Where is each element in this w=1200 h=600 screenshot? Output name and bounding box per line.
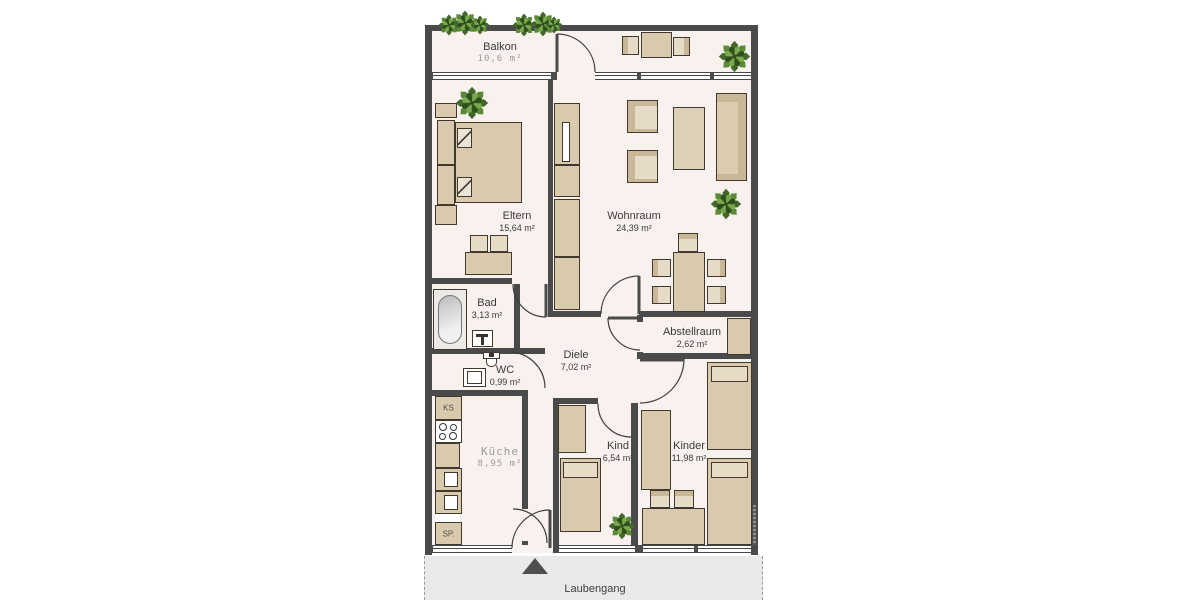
- wardrobe-icon: [554, 165, 580, 197]
- desk-chair-icon: [674, 490, 694, 508]
- plant-icon: [718, 40, 751, 73]
- dining-chair-icon: [652, 259, 671, 277]
- sofa-icon: [716, 93, 747, 181]
- room-area: 3,13 m²: [472, 310, 503, 320]
- pillow-icon: [457, 128, 472, 148]
- wardrobe-icon: [558, 405, 586, 453]
- room-label-eltern: Eltern 15,64 m²: [499, 210, 535, 233]
- room-area: 6,54 m²: [603, 453, 634, 463]
- room-area: 0,99 m²: [490, 377, 521, 387]
- room-label-wc: WC 0,99 m²: [490, 364, 521, 387]
- floor-plan: KS SP.: [0, 0, 1200, 600]
- stool-icon: [470, 235, 488, 252]
- room-label-kueche: Küche 8,95 m²: [478, 446, 523, 469]
- pillow-icon: [711, 462, 748, 478]
- dining-chair-icon: [707, 259, 726, 277]
- wardrobe-icon: [554, 257, 580, 310]
- burner-icon: [450, 424, 457, 431]
- room-name: Kinder: [672, 440, 707, 453]
- pillow-icon: [711, 366, 748, 382]
- room-area: 10,6 m²: [478, 54, 523, 64]
- desk-chair-icon: [650, 490, 670, 508]
- entrance-arrow-icon: [522, 558, 548, 574]
- room-label-kind: Kind 6,54 m²: [603, 440, 634, 463]
- cabinet-icon: [435, 103, 457, 118]
- dishwasher-label: SP.: [436, 529, 461, 538]
- balcony-chair-icon: [622, 36, 639, 55]
- watermark: [753, 505, 756, 545]
- balcony-chair-icon: [673, 37, 690, 56]
- wardrobe-mirror-icon: [562, 122, 570, 162]
- burner-icon: [449, 432, 457, 440]
- laubengang-strip: Laubengang: [424, 556, 763, 600]
- kitchen-counter-gap: [435, 514, 460, 522]
- dining-chair-icon: [707, 286, 726, 304]
- room-area: 7,02 m²: [561, 362, 592, 372]
- room-name: Bad: [472, 297, 503, 310]
- room-name: Balkon: [478, 41, 523, 54]
- room-area: 15,64 m²: [499, 223, 535, 233]
- room-name: Abstellraum: [663, 326, 721, 339]
- room-label-bad: Bad 3,13 m²: [472, 297, 503, 320]
- wc-sink-basin-icon: [467, 371, 482, 384]
- room-label-abstellraum: Abstellraum 2,62 m²: [663, 326, 721, 349]
- kitchen-counter-icon: [435, 443, 460, 468]
- dresser-icon: [465, 252, 512, 275]
- bathtub-basin-icon: [438, 295, 462, 344]
- laubengang-label: Laubengang: [564, 583, 625, 596]
- storage-cabinet-icon: [727, 318, 751, 355]
- room-name: Küche: [478, 446, 523, 459]
- fridge-icon: KS: [435, 396, 462, 420]
- dining-table-icon: [673, 252, 705, 312]
- armchair-icon: [627, 150, 658, 183]
- room-name: Kind: [603, 440, 634, 453]
- room-label-balkon: Balkon 10,6 m²: [478, 41, 523, 64]
- room-name: WC: [490, 364, 521, 377]
- room-name: Wohnraum: [607, 210, 661, 223]
- pillow-icon: [457, 177, 472, 197]
- room-label-kinder: Kinder 11,98 m²: [672, 440, 707, 463]
- fridge-label: KS: [436, 404, 461, 413]
- pillow-icon: [563, 462, 598, 478]
- room-area: 24,39 m²: [607, 223, 661, 233]
- plant-icon: [710, 188, 742, 220]
- washbasin-tap-icon: [481, 337, 484, 345]
- plant-icon: [470, 15, 490, 35]
- dining-chair-icon: [678, 233, 698, 252]
- dishwasher-icon: SP.: [435, 522, 462, 545]
- burner-icon: [439, 433, 446, 440]
- nightstand-icon: [437, 165, 455, 205]
- desk-icon: [642, 508, 705, 545]
- room-name: Diele: [561, 349, 592, 362]
- wardrobe-icon: [641, 410, 671, 490]
- armchair-icon: [627, 100, 658, 133]
- toilet-flush-icon: [489, 353, 494, 357]
- stool-icon: [490, 235, 508, 252]
- room-area: 11,98 m²: [672, 453, 707, 463]
- room-area: 2,62 m²: [663, 339, 721, 349]
- burner-icon: [439, 423, 447, 431]
- room-area: 8,95 m²: [478, 459, 523, 469]
- cabinet-icon: [435, 205, 457, 225]
- room-label-wohnraum: Wohnraum 24,39 m²: [607, 210, 661, 233]
- coffee-table-icon: [673, 107, 705, 170]
- room-label-diele: Diele 7,02 m²: [561, 349, 592, 372]
- kitchen-sink-icon: [444, 495, 458, 510]
- wardrobe-icon: [554, 199, 580, 257]
- balcony-table-icon: [641, 32, 672, 58]
- plant-icon: [455, 86, 489, 120]
- kitchen-sink-icon: [444, 472, 458, 487]
- dining-chair-icon: [652, 286, 671, 304]
- room-name: Eltern: [499, 210, 535, 223]
- plant-icon: [545, 16, 563, 34]
- nightstand-icon: [437, 120, 455, 165]
- plant-icon: [608, 512, 636, 540]
